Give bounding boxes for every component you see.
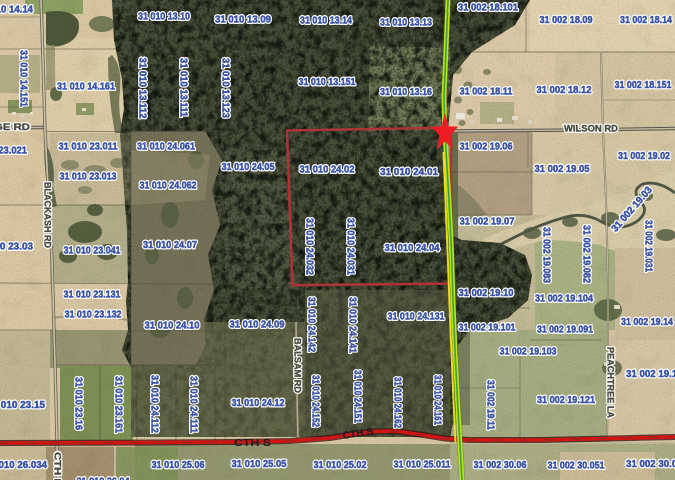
svg-text:31 010 14.14: 31 010 14.14 — [0, 4, 33, 15]
svg-text:31 002 19.083: 31 002 19.083 — [541, 227, 552, 283]
svg-text:31 002 19.121: 31 002 19.121 — [537, 395, 595, 406]
svg-text:31 002 19.101: 31 002 19.101 — [459, 322, 516, 333]
svg-text:31 010 23.041: 31 010 23.041 — [64, 245, 121, 256]
svg-text:31 010 24.141: 31 010 24.141 — [347, 297, 358, 353]
svg-text:31 010 24.031: 31 010 24.031 — [345, 218, 356, 275]
svg-text:31 002 30.052: 31 002 30.052 — [626, 459, 675, 470]
svg-text:31 010 24.131: 31 010 24.131 — [388, 311, 445, 322]
svg-text:31 010 26.034: 31 010 26.034 — [0, 460, 47, 471]
svg-text:31 010 24.05: 31 010 24.05 — [222, 162, 275, 173]
svg-text:31 010 13.14: 31 010 13.14 — [300, 15, 352, 26]
svg-text:31 010 13.123: 31 010 13.123 — [220, 58, 231, 118]
svg-text:31 010 23.03: 31 010 23.03 — [0, 241, 33, 252]
svg-text:CTH P: CTH P — [52, 452, 63, 480]
svg-text:31 010 24.09: 31 010 24.09 — [230, 319, 285, 330]
svg-text:31 010 13.13: 31 010 13.13 — [380, 17, 432, 28]
svg-text:31 002 18.11: 31 002 18.11 — [460, 86, 513, 97]
svg-text:31 002 18.09: 31 002 18.09 — [540, 15, 593, 26]
svg-text:31 002 18.12: 31 002 18.12 — [537, 85, 592, 96]
svg-text:31 010 24.12: 31 010 24.12 — [232, 398, 285, 409]
svg-text:31 010 24.142: 31 010 24.142 — [306, 297, 317, 352]
svg-text:31 002 18.101: 31 002 18.101 — [458, 2, 518, 13]
svg-text:31 010 24.112: 31 010 24.112 — [149, 375, 160, 433]
svg-text:31 002 19.10: 31 002 19.10 — [459, 288, 514, 299]
svg-text:31 010 23.131: 31 010 23.131 — [64, 289, 121, 300]
svg-text:31 002 19.091: 31 002 19.091 — [537, 324, 593, 335]
svg-text:31 010 13.09: 31 010 13.09 — [215, 14, 271, 25]
svg-text:31 010 13.111: 31 010 13.111 — [178, 58, 189, 117]
svg-text:31 010 14.161: 31 010 14.161 — [57, 81, 115, 92]
svg-text:31 010 13.151: 31 010 13.151 — [299, 77, 356, 88]
svg-text:31 010 13.10: 31 010 13.10 — [138, 11, 190, 22]
svg-text:31 002 18.151: 31 002 18.151 — [615, 80, 672, 91]
svg-text:BLACKASH RD: BLACKASH RD — [42, 182, 53, 248]
svg-text:31 010 24.062: 31 010 24.062 — [140, 180, 197, 191]
svg-text:31 010 24.032: 31 010 24.032 — [304, 218, 315, 275]
svg-text:31 010 25.02: 31 010 25.02 — [314, 460, 367, 471]
svg-text:GE RD: GE RD — [0, 122, 30, 133]
svg-text:31 010 26.04: 31 010 26.04 — [77, 476, 130, 480]
svg-text:31 010 23.132: 31 010 23.132 — [65, 309, 122, 320]
svg-text:PEACHTREE LA: PEACHTREE LA — [605, 347, 616, 418]
svg-text:31 002 30.06: 31 002 30.06 — [474, 460, 527, 471]
svg-text:31 002 19.151: 31 002 19.151 — [626, 369, 675, 380]
svg-text:31 010 24.01: 31 010 24.01 — [380, 167, 438, 178]
svg-text:31 002 19.082: 31 002 19.082 — [581, 225, 592, 283]
svg-text:31 002 19.07: 31 002 19.07 — [460, 216, 515, 227]
svg-text:31 002 18.14: 31 002 18.14 — [620, 15, 672, 26]
svg-text:31 010 13.16: 31 010 13.16 — [380, 87, 432, 98]
svg-text:31 010 24.061: 31 010 24.061 — [137, 141, 195, 152]
svg-text:31 010 24.151: 31 010 24.151 — [352, 370, 363, 423]
svg-text:31 010 24.161: 31 010 24.161 — [432, 375, 443, 425]
svg-text:WILSON RD: WILSON RD — [564, 124, 618, 135]
svg-text:31 010 14.151: 31 010 14.151 — [18, 50, 29, 107]
svg-text:31 002 19.14: 31 002 19.14 — [621, 317, 673, 328]
svg-text:31 010 23.16: 31 010 23.16 — [73, 377, 84, 430]
svg-text:31 010 23.021: 31 010 23.021 — [0, 145, 27, 156]
svg-text:31 010 24.162: 31 010 24.162 — [392, 377, 403, 428]
svg-text:31 002 19.11: 31 002 19.11 — [485, 380, 496, 430]
svg-text:31 010 23.013: 31 010 23.013 — [60, 171, 117, 182]
svg-text:31 010 25.011: 31 010 25.011 — [394, 459, 451, 470]
svg-text:CTH S: CTH S — [234, 437, 271, 449]
svg-text:31 010 13.112: 31 010 13.112 — [137, 58, 148, 119]
svg-text:31 010 25.06: 31 010 25.06 — [152, 460, 205, 471]
svg-text:31 010 23.161: 31 010 23.161 — [113, 376, 124, 433]
svg-text:31 002 19.031: 31 002 19.031 — [643, 220, 654, 272]
svg-text:31 010 24.02: 31 010 24.02 — [300, 164, 355, 175]
svg-text:31 010 23.011: 31 010 23.011 — [59, 141, 118, 152]
svg-text:BALSAM RD: BALSAM RD — [292, 338, 303, 393]
svg-text:31 010 23.15: 31 010 23.15 — [0, 400, 45, 411]
svg-text:31 010 24.10: 31 010 24.10 — [145, 320, 200, 331]
svg-text:31 002 30.051: 31 002 30.051 — [548, 460, 605, 471]
svg-text:31 010 24.152: 31 010 24.152 — [310, 375, 321, 427]
svg-text:31 002 19.103: 31 002 19.103 — [500, 346, 557, 357]
svg-text:31 010 24.111: 31 010 24.111 — [188, 376, 199, 433]
svg-text:31 010 24.07: 31 010 24.07 — [143, 240, 197, 251]
svg-text:31 002 19.06: 31 002 19.06 — [460, 141, 513, 152]
svg-text:31 002 19.104: 31 002 19.104 — [535, 293, 593, 304]
svg-text:31 002 19.05: 31 002 19.05 — [535, 164, 590, 175]
svg-text:31 002 19.02: 31 002 19.02 — [618, 151, 670, 162]
svg-text:31 010 25.05: 31 010 25.05 — [232, 459, 287, 470]
svg-text:31 010 24.04: 31 010 24.04 — [385, 243, 440, 254]
